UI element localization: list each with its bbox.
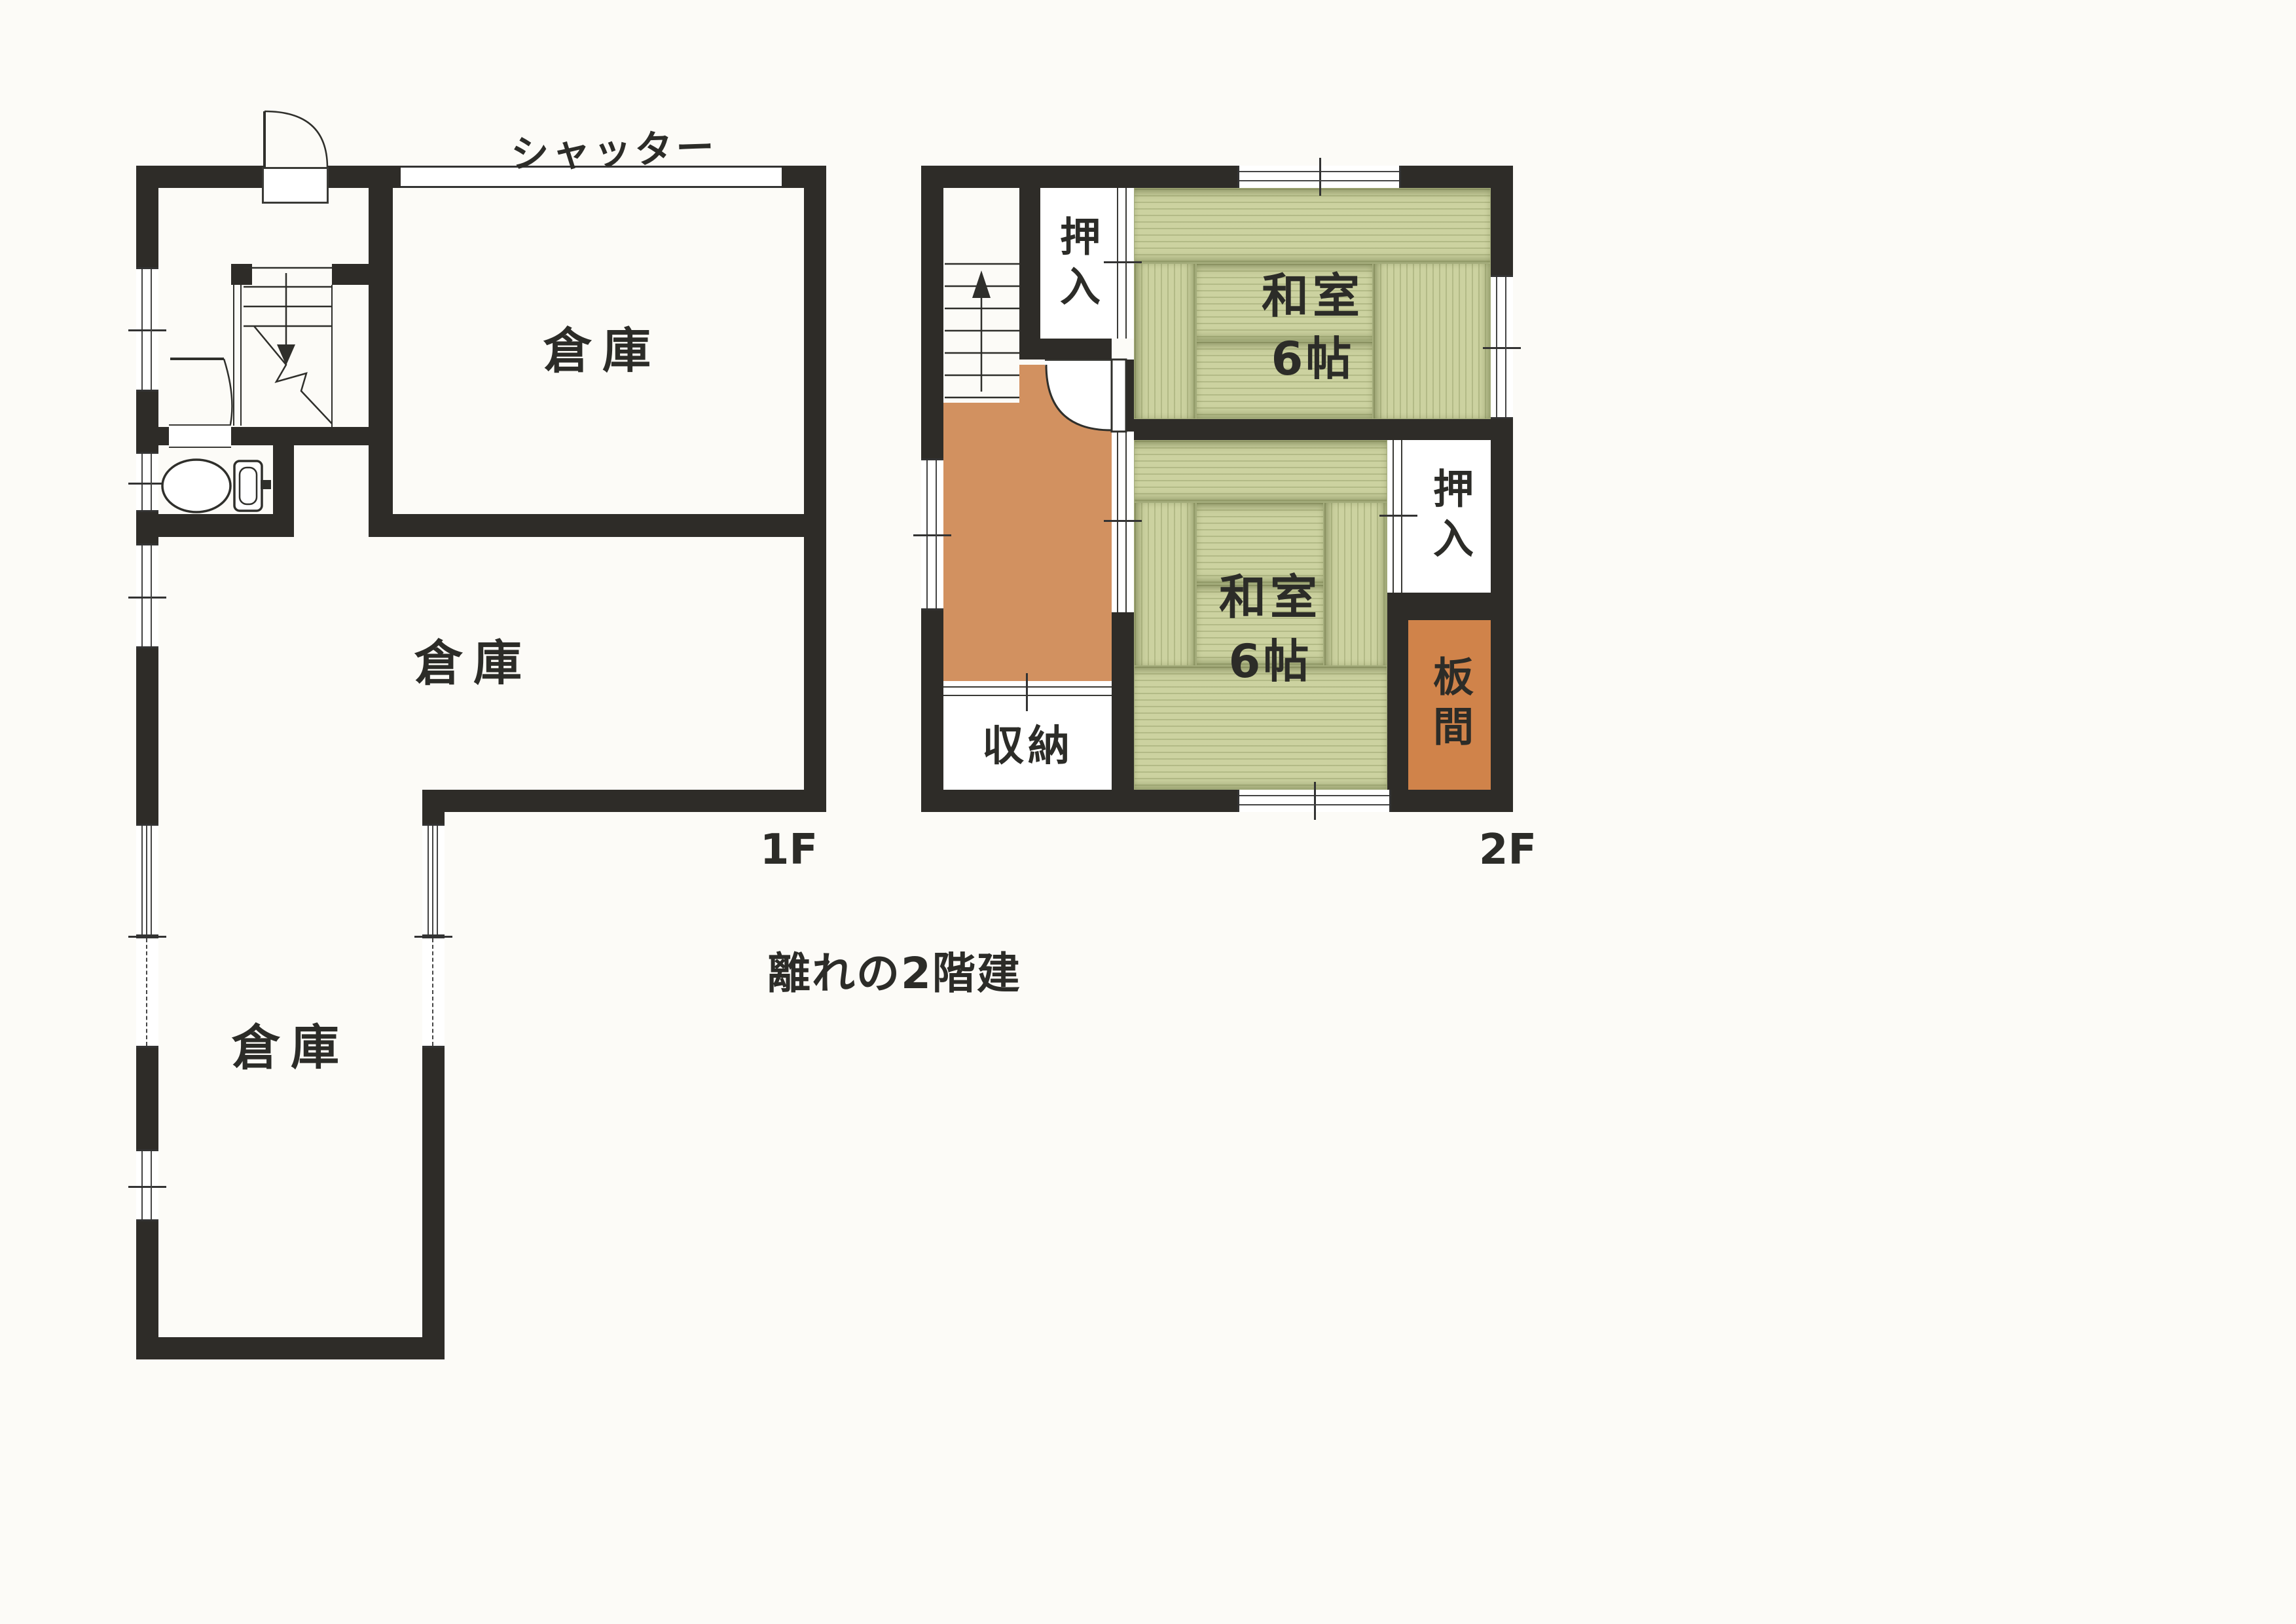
room-label-washitsu2-name: 和室 — [1219, 574, 1321, 621]
room-label-storage-middle: 倉庫 — [414, 639, 532, 688]
caption: 離れの2階建 — [767, 952, 1021, 995]
room-label-itanoma: 板間 — [1429, 655, 1470, 755]
room-label-washitsu2-size: 6帖 — [1229, 638, 1312, 684]
toilet-icon — [162, 460, 271, 512]
floor1-label: 1F — [760, 829, 818, 871]
floorplan-sheet: シャッター 倉庫 倉庫 倉庫 1F 2F 離れの2階建 和室 6帖 和室 6帖 … — [0, 0, 2296, 1624]
room-label-oshiire-right: 押入 — [1429, 468, 1470, 567]
floor2-label: 2F — [1479, 829, 1537, 871]
room-label-storage-top: 倉庫 — [543, 327, 661, 375]
room-label-washitsu1-name: 和室 — [1262, 272, 1364, 320]
room-label-storage-lower: 倉庫 — [232, 1024, 350, 1072]
plan-linework — [0, 0, 2296, 1624]
hall-door-swing — [170, 359, 232, 424]
door-leaf — [1112, 360, 1126, 432]
room-label-oshiire-top: 押入 — [1056, 215, 1097, 315]
room-label-washitsu1-size: 6帖 — [1271, 336, 1355, 382]
shutter-label: シャッター — [511, 128, 718, 174]
door-swing-area — [1046, 365, 1112, 430]
entry-door-swing — [264, 111, 327, 168]
stairs-down-arrowhead — [277, 344, 295, 365]
stairs-up-arrowhead — [972, 270, 991, 298]
room-label-shuno: 収納 — [982, 726, 1074, 767]
